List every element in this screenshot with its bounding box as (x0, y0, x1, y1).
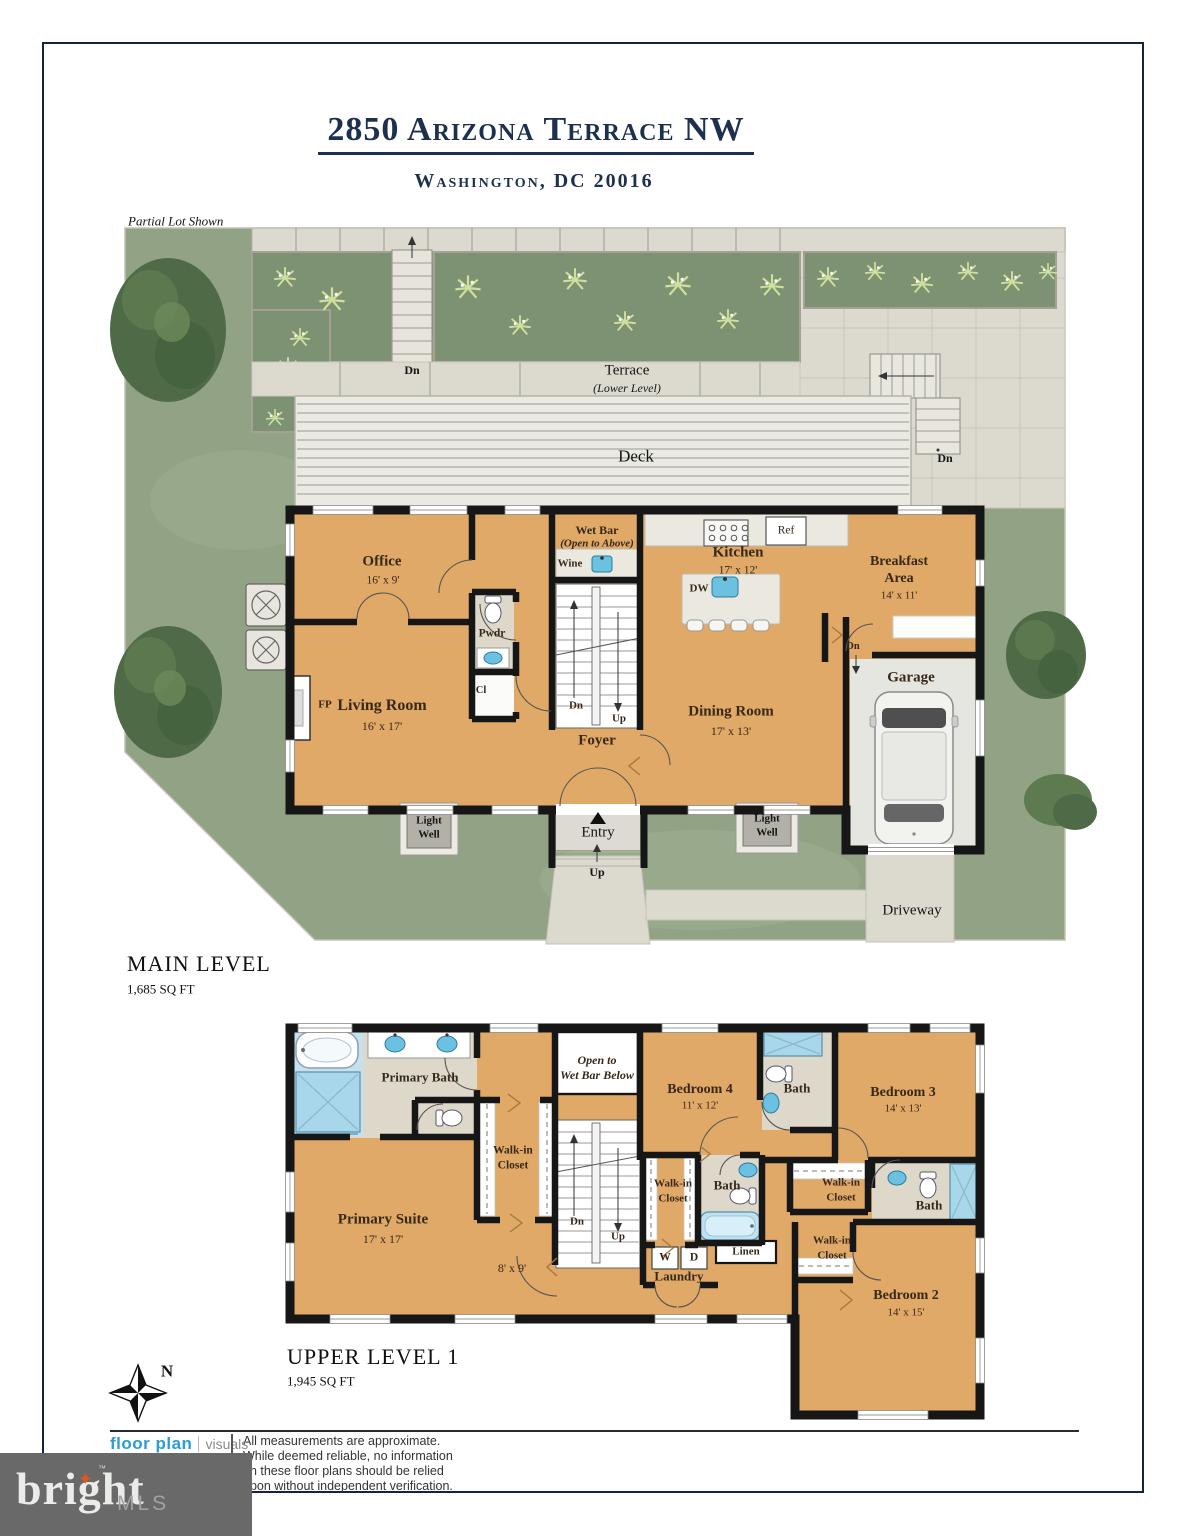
title-underline (318, 152, 754, 155)
light-well-label: Light (754, 814, 780, 825)
main-level-heading: MAIN LEVEL (127, 953, 271, 975)
walk-in-closet-label2: Closet (817, 1251, 846, 1262)
bathtub-icon (700, 1212, 760, 1240)
brand-trademark: ™ (98, 1464, 106, 1473)
walk-in-closet-label: Walk-in (822, 1178, 860, 1189)
shower-icon (296, 1072, 360, 1134)
light-well-label: Well (418, 830, 439, 841)
side-path (646, 890, 868, 920)
sink-icon (437, 1036, 457, 1052)
walk-in-closet-label: Walk-in (493, 1145, 533, 1157)
linen-label: Linen (732, 1247, 760, 1258)
walk-in-closet-label2: Closet (498, 1160, 529, 1172)
driveway-surface (866, 854, 954, 942)
bathtub-icon (296, 1032, 358, 1068)
bedroom4-label: Bedroom 4 (667, 1083, 732, 1097)
toilet-icon (436, 1110, 462, 1126)
breakfast-area-label: Breakfast (870, 555, 928, 569)
primary-bath-label: Primary Bath (382, 1071, 459, 1084)
sink-icon (739, 1163, 757, 1177)
tree (1006, 611, 1086, 699)
double-vanity (368, 1029, 470, 1058)
walk-in-closet-label2: Closet (658, 1194, 687, 1205)
open-to-label: Open to (578, 1054, 617, 1066)
page-title: 2850 Arizona Terrace NW (327, 113, 744, 147)
floor-plan-drawing (0, 0, 1186, 1536)
brand-mls-label: MLS (117, 1492, 169, 1516)
walk-in-closet-label: Walk-in (654, 1179, 692, 1190)
main-stairs-up-label: Up (612, 714, 626, 725)
office-dims: 16' x 9' (367, 575, 400, 587)
floor-plan-page: 2850 Arizona Terrace NW Washington, DC 2… (0, 0, 1186, 1536)
sink-icon (888, 1171, 906, 1185)
bath-label: Bath (784, 1082, 811, 1095)
walk-in-closet-label2: Closet (826, 1193, 855, 1204)
powder-room-label: Pwdr (479, 628, 506, 640)
upper-level-area: 1,945 SQ FT (287, 1375, 355, 1388)
washer-label: W (659, 1252, 671, 1264)
disclaimer-line: on these floor plans should be relied (243, 1464, 444, 1478)
light-well-label: Well (756, 828, 777, 839)
garden-stairs-dn-label: Dn (404, 364, 419, 376)
upper-level-heading: UPPER LEVEL 1 (287, 1346, 459, 1368)
sink-icon (385, 1036, 405, 1052)
garage-step-dn-label: Dn (846, 642, 859, 653)
laundry-label: Laundry (654, 1270, 703, 1283)
dryer-label: D (690, 1252, 698, 1264)
car (870, 692, 958, 844)
shower-icon (764, 1032, 822, 1056)
bedroom2-dims: 14' x 15' (888, 1308, 925, 1319)
kitchen-dims: 17' x 12' (719, 565, 758, 577)
fireplace-label: FP (318, 700, 331, 711)
upper-stairs (556, 1120, 640, 1268)
footer-divider (110, 1430, 1079, 1432)
bath-label: Bath (714, 1179, 741, 1192)
powder-sink (477, 648, 509, 668)
dining-room-dims: 17' x 13' (711, 725, 751, 737)
deck-label: Deck (618, 448, 654, 465)
upper-stairs-dn-label: Dn (570, 1217, 584, 1228)
wet-bar-label: Wet Bar (576, 524, 619, 536)
breakfast-bench (893, 616, 980, 638)
living-room-label: Living Room (337, 698, 426, 714)
disclaimer-line: While deemed reliable, no information (243, 1449, 453, 1463)
sink-icon (484, 652, 502, 664)
primary-suite-dims: 17' x 17' (363, 1233, 403, 1245)
tree (114, 626, 222, 758)
bath-label: Bath (916, 1199, 943, 1212)
compass-north-label: N (161, 1363, 173, 1380)
fridge-label: Ref (778, 525, 795, 537)
logo-primary: floor plan (110, 1434, 192, 1454)
compass-rose-icon (110, 1365, 166, 1421)
garage-label: Garage (887, 671, 934, 686)
bedroom3-label: Bedroom 3 (870, 1086, 935, 1100)
office-label: Office (362, 555, 401, 570)
sink-icon (763, 1093, 779, 1113)
deck-surface (295, 396, 911, 508)
bedroom3-dims: 14' x 13' (885, 1104, 922, 1115)
page-subtitle: Washington, DC 20016 (414, 171, 653, 191)
disclaimer-line: upon without independent verification. (243, 1479, 453, 1493)
wet-bar-note: (Open to Above) (560, 539, 634, 550)
walk-in-closet-label: Walk-in (813, 1236, 851, 1247)
exterior-stairs-dn-label: Dn (937, 452, 952, 464)
dishwasher-label: DW (690, 584, 709, 595)
terrace-sublabel: (Lower Level) (593, 382, 661, 394)
hall-dims: 8' x 9' (498, 1262, 526, 1274)
open-to-label2: Wet Bar Below (560, 1069, 634, 1081)
living-room-dims: 16' x 17' (362, 720, 402, 732)
tree (110, 258, 226, 402)
garden-stairs (392, 236, 432, 362)
closet-abbr-label: Cl (476, 686, 487, 697)
primary-suite-label: Primary Suite (338, 1213, 428, 1228)
foyer-label: Foyer (578, 734, 615, 749)
light-well-label: Light (416, 816, 442, 827)
bedroom4-dims: 11' x 12' (682, 1101, 719, 1112)
toilet-icon (920, 1172, 936, 1198)
shower-icon (950, 1164, 978, 1220)
disclaimer-line: All measurements are approximate. (243, 1434, 440, 1448)
bedroom2-label: Bedroom 2 (873, 1289, 938, 1303)
driveway-label: Driveway (882, 904, 941, 919)
stove-icon (704, 520, 748, 546)
upper-stairs-up-label: Up (611, 1232, 625, 1243)
toilet-icon (485, 596, 501, 623)
breakfast-area-label2: Area (884, 572, 913, 586)
partial-lot-note: Partial Lot Shown (128, 215, 223, 228)
brand-star-icon: ✦ (78, 1469, 93, 1490)
terrace-label: Terrace (605, 364, 650, 379)
main-stairs-dn-label: Dn (569, 701, 583, 712)
entry-label: Entry (581, 826, 614, 841)
entry-up-label: Up (589, 866, 604, 878)
logo-secondary: visuals (198, 1436, 248, 1452)
wine-fridge-label: Wine (558, 559, 583, 570)
floor-plan-visuals-logo: floor plan visuals (110, 1434, 248, 1454)
dining-room-label: Dining Room (688, 705, 773, 720)
main-level-area: 1,685 SQ FT (127, 983, 195, 996)
breakfast-area-dims: 14' x 11' (881, 591, 918, 602)
kitchen-label: Kitchen (713, 546, 764, 561)
